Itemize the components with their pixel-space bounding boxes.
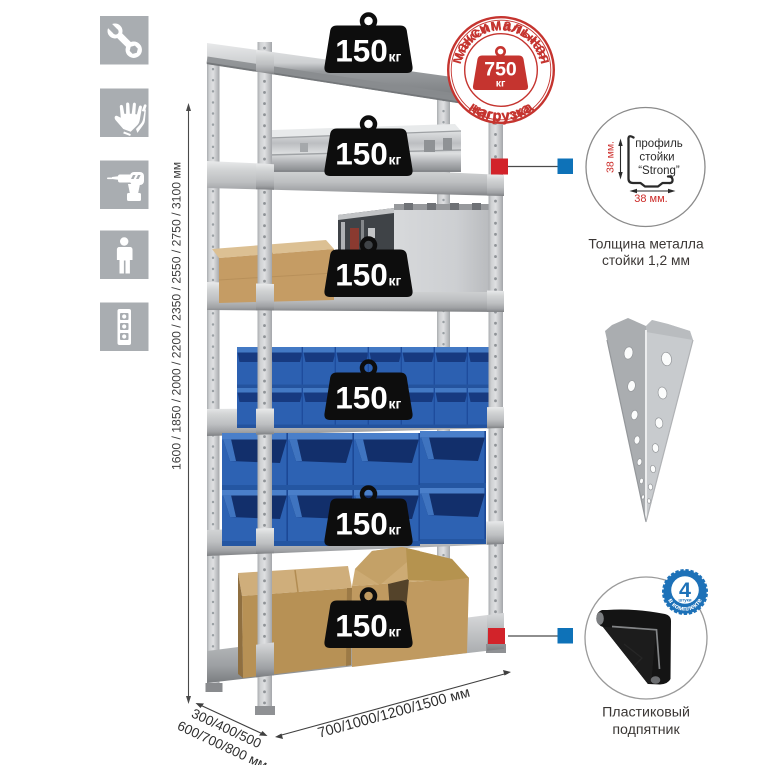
svg-text:150: 150 [335,33,388,69]
svg-text:кг: кг [389,152,402,168]
svg-text:1600 / 1850 / 2000 / 2200 / 23: 1600 / 1850 / 2000 / 2200 / 2350 / 2550 … [170,162,184,470]
svg-text:м: м [489,16,502,34]
svg-text:Толщина металла: Толщина металла [588,237,704,252]
svg-text:штуки: штуки [679,598,692,603]
svg-text:кг: кг [389,273,402,289]
svg-text:150: 150 [335,506,388,542]
svg-text:150: 150 [335,136,388,172]
svg-text:стойки 1,2 мм: стойки 1,2 мм [602,253,690,268]
svg-text:стойки: стойки [639,152,674,164]
svg-text:кг: кг [389,522,402,538]
svg-text:кг: кг [389,396,402,412]
svg-text:подпятник: подпятник [612,722,680,738]
svg-text:150: 150 [335,380,388,416]
svg-text:Пластиковый: Пластиковый [602,705,690,721]
svg-text:38 мм.: 38 мм. [605,141,617,173]
svg-text:профиль: профиль [635,138,683,150]
svg-text:кг: кг [389,49,402,65]
svg-text:38 мм.: 38 мм. [634,193,667,205]
svg-text:кг: кг [389,624,402,640]
svg-text:150: 150 [335,608,388,644]
svg-text:“Strong”: “Strong” [638,165,680,177]
svg-text:150: 150 [335,257,388,293]
svg-text:кг: кг [496,78,506,90]
